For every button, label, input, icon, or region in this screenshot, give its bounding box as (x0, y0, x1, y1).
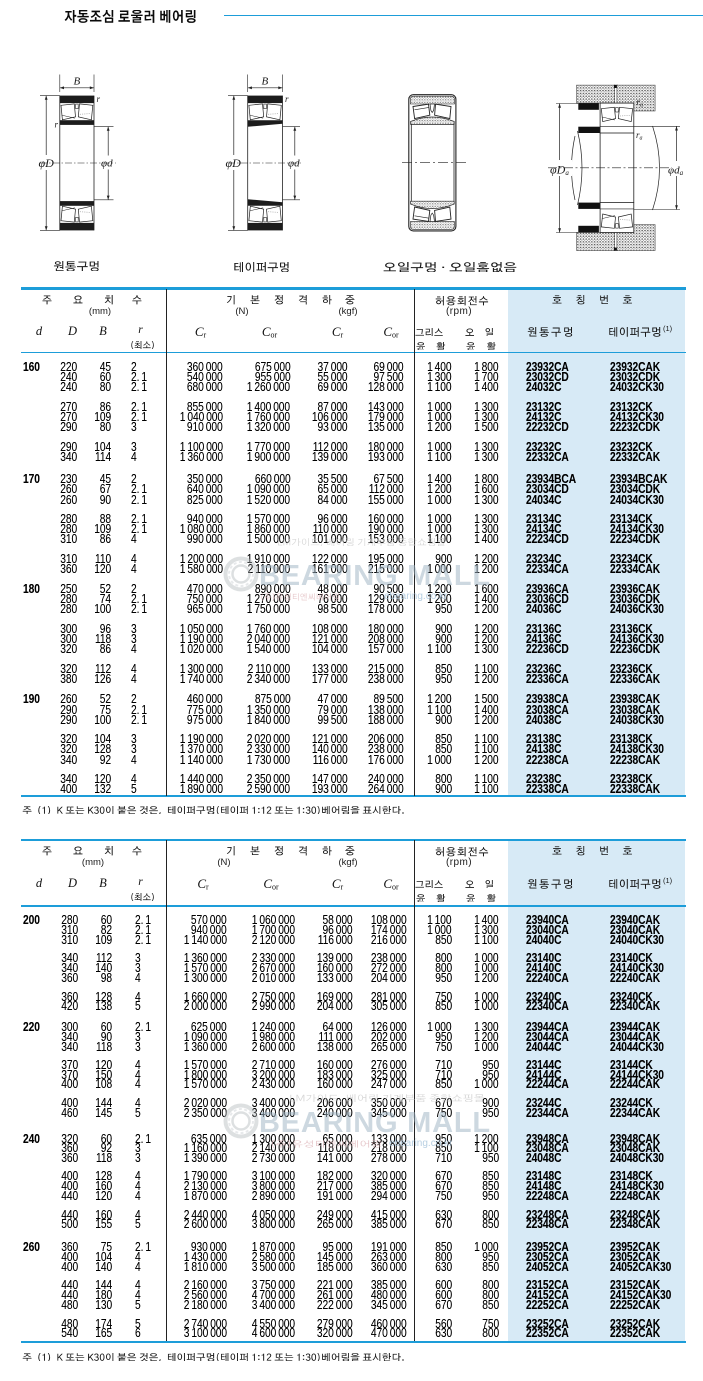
svg-text:φd: φd (288, 158, 300, 170)
svg-text:φd: φd (101, 158, 113, 170)
svg-text:ra: ra (636, 130, 643, 142)
svg-text:B: B (262, 76, 269, 88)
svg-text:r: r (97, 94, 101, 104)
svg-text:B: B (74, 76, 81, 88)
svg-text:r: r (285, 94, 289, 104)
svg-text:r: r (55, 120, 59, 130)
